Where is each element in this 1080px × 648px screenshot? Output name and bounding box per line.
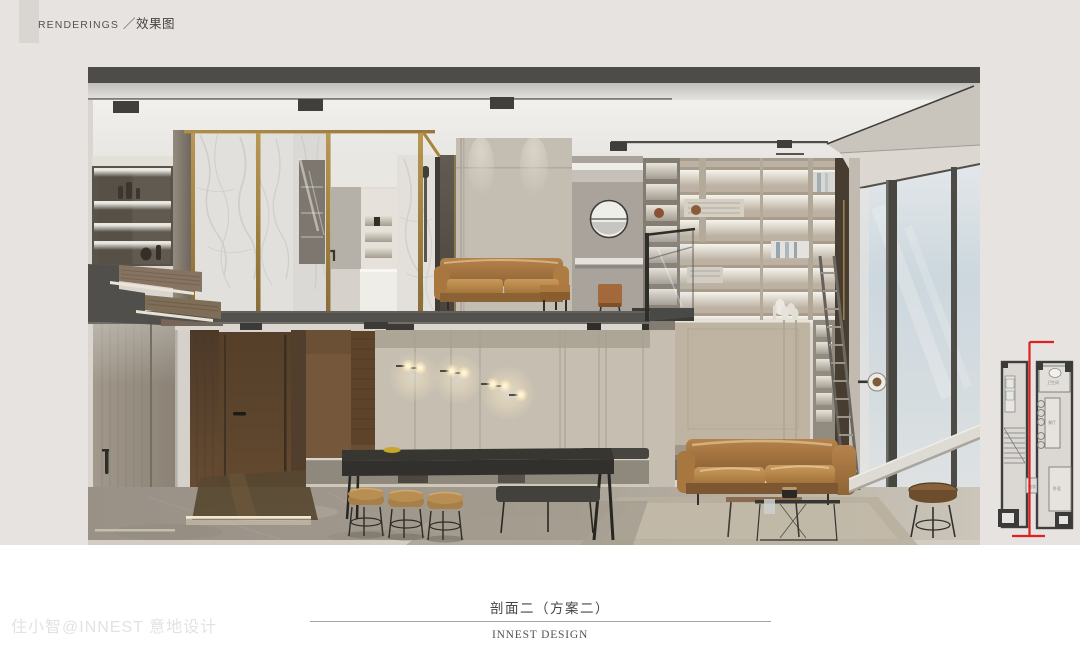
svg-text:卫生间: 卫生间	[1047, 379, 1059, 385]
svg-text:卧室: 卧室	[1053, 485, 1061, 491]
svg-text:餐厅: 餐厅	[1048, 419, 1056, 425]
